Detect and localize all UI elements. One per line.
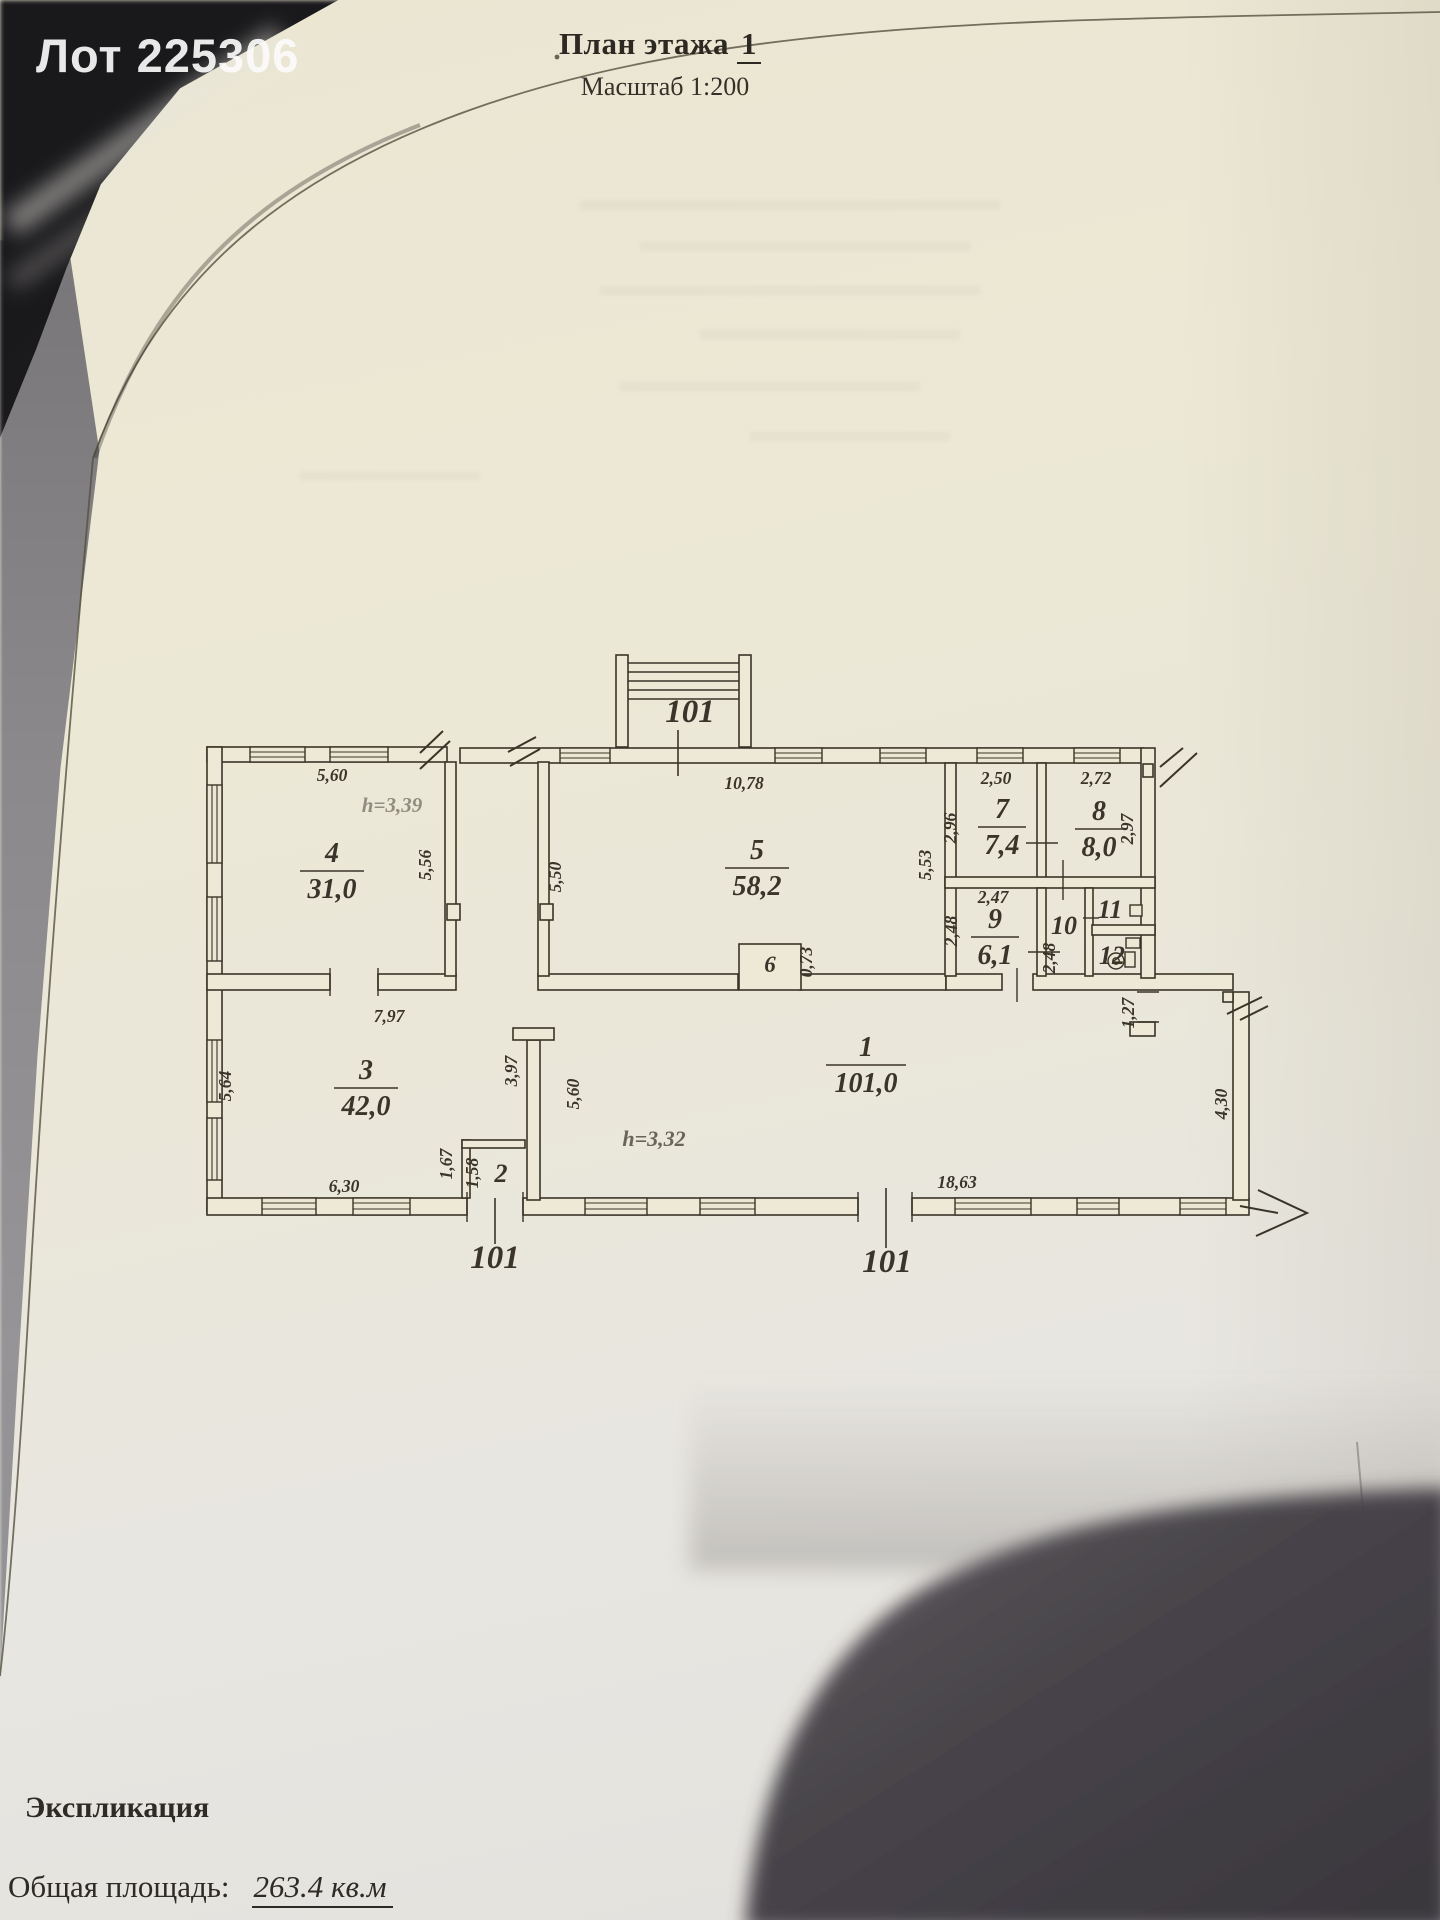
photographed-floor-plan-page: 1101,02342,0431,0558,2677,488,096,110111… xyxy=(0,0,1440,1920)
dark-shadow-object xyxy=(0,0,1440,1920)
lot-watermark: Лот 225306 xyxy=(36,28,299,83)
